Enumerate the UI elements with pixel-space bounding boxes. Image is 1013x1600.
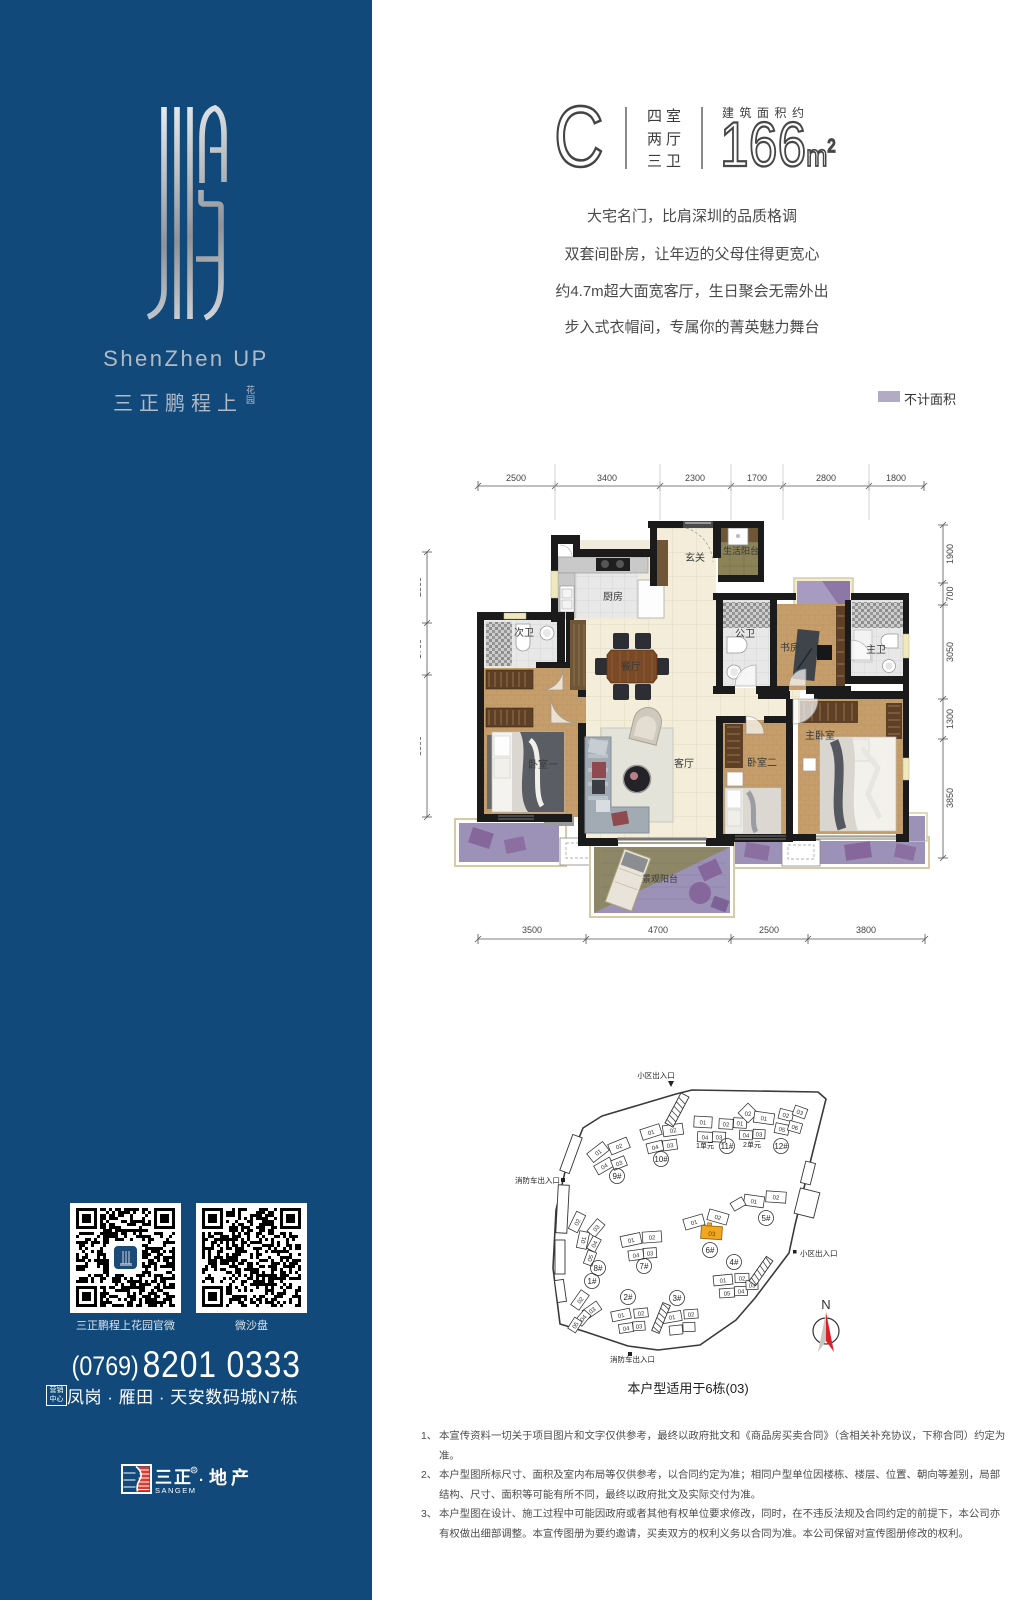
svg-text:1700: 1700	[420, 639, 423, 659]
svg-text:景观阳台: 景观阳台	[642, 873, 678, 884]
svg-text:5#: 5#	[762, 1214, 771, 1223]
svg-text:客厅: 客厅	[674, 757, 694, 770]
svg-text:2#: 2#	[624, 1293, 633, 1302]
svg-text:书房: 书房	[780, 641, 800, 654]
svg-text:3050: 3050	[945, 642, 955, 662]
svg-text:3500: 3500	[522, 925, 542, 935]
svg-text:04: 04	[742, 1133, 750, 1139]
svg-text:消防车出入口: 消防车出入口	[515, 1175, 560, 1185]
svg-text:餐厅: 餐厅	[621, 660, 641, 673]
svg-text:3800: 3800	[420, 736, 423, 756]
svg-text:次卫: 次卫	[514, 626, 534, 639]
svg-text:05: 05	[724, 1291, 732, 1297]
svg-text:主卧室: 主卧室	[805, 729, 835, 742]
svg-text:02: 02	[688, 1312, 696, 1318]
svg-text:1300: 1300	[945, 709, 955, 729]
svg-text:3400: 3400	[597, 473, 617, 483]
svg-text:小区出入口: 小区出入口	[637, 1070, 675, 1080]
svg-text:1900: 1900	[945, 544, 955, 564]
svg-text:04: 04	[701, 1135, 709, 1141]
svg-text:2300: 2300	[685, 473, 705, 483]
svg-text:1单元: 1单元	[696, 1141, 714, 1150]
svg-text:1800: 1800	[886, 473, 906, 483]
svg-text:9#: 9#	[613, 1172, 622, 1181]
svg-text:4700: 4700	[648, 925, 668, 935]
svg-text:02: 02	[772, 1195, 780, 1201]
svg-text:2500: 2500	[506, 473, 526, 483]
svg-text:主卫: 主卫	[866, 644, 886, 656]
svg-text:03: 03	[647, 1251, 655, 1257]
svg-text:04: 04	[738, 1289, 746, 1295]
svg-text:2单元: 2单元	[743, 1140, 761, 1149]
svg-text:01: 01	[736, 1121, 744, 1127]
svg-text:6#: 6#	[706, 1246, 715, 1255]
svg-text:·: ·	[199, 1472, 204, 1489]
svg-text:3#: 3#	[673, 1294, 682, 1303]
svg-text:02: 02	[638, 1311, 646, 1318]
svg-text:N: N	[821, 1297, 830, 1312]
svg-text:02: 02	[739, 1276, 747, 1282]
svg-text:2800: 2800	[816, 473, 836, 483]
svg-text:02: 02	[722, 1122, 730, 1128]
svg-text:小区出入口: 小区出入口	[800, 1248, 838, 1258]
svg-text:卧室一: 卧室一	[528, 758, 558, 771]
svg-text:3800: 3800	[856, 925, 876, 935]
svg-text:01: 01	[720, 1278, 728, 1285]
svg-text:01: 01	[699, 1120, 707, 1126]
svg-text:1#: 1#	[588, 1277, 597, 1286]
svg-text:卧室二: 卧室二	[747, 756, 777, 769]
svg-text:1700: 1700	[747, 473, 767, 483]
svg-text:三正: 三正	[155, 1468, 193, 1487]
svg-text:10#: 10#	[654, 1155, 668, 1164]
svg-text:700: 700	[945, 586, 955, 601]
svg-text:厨房: 厨房	[603, 590, 623, 603]
svg-text:4#: 4#	[730, 1258, 739, 1267]
svg-text:生活阳台: 生活阳台	[723, 545, 759, 556]
svg-text:02: 02	[745, 1112, 752, 1118]
svg-text:2500: 2500	[759, 925, 779, 935]
svg-text:R: R	[192, 1468, 196, 1474]
svg-text:3850: 3850	[945, 788, 955, 808]
svg-text:12#: 12#	[774, 1142, 788, 1151]
svg-text:SANGEM: SANGEM	[155, 1486, 197, 1495]
svg-text:03: 03	[708, 1231, 716, 1239]
svg-text:7#: 7#	[640, 1262, 649, 1271]
svg-text:03: 03	[636, 1324, 644, 1330]
svg-text:公卫: 公卫	[735, 629, 755, 640]
svg-text:03: 03	[755, 1132, 763, 1138]
svg-text:8#: 8#	[594, 1264, 603, 1273]
svg-text:02: 02	[649, 1235, 657, 1241]
svg-text:2300: 2300	[420, 577, 423, 597]
svg-text:11#: 11#	[721, 1142, 734, 1151]
svg-text:地产: 地产	[209, 1467, 253, 1488]
svg-text:玄关: 玄关	[685, 551, 705, 564]
svg-text:消防车出入口: 消防车出入口	[610, 1354, 655, 1364]
